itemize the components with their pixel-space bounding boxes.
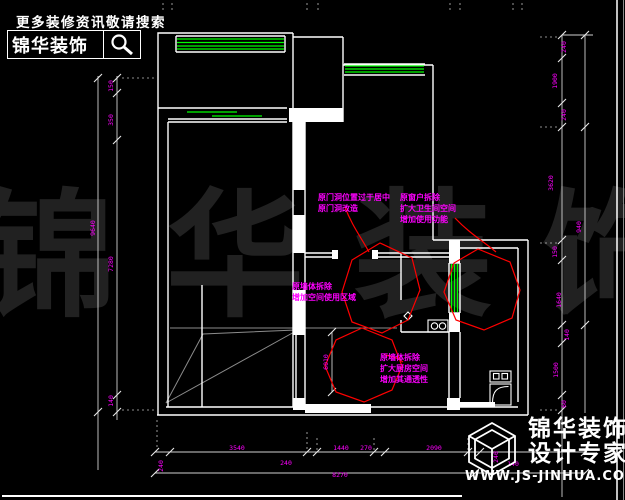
dim-value: 9640: [89, 220, 97, 236]
search-icon: [103, 31, 140, 58]
dim-value: 240: [157, 460, 165, 472]
dim-value: 150: [107, 80, 115, 92]
brand-search-box: 锦华装饰: [7, 30, 141, 59]
dim-value: 1900: [551, 73, 559, 89]
dim-value: 270: [360, 444, 372, 452]
footer-brand-line1: 锦华装饰: [528, 418, 625, 441]
dim-value: 240: [280, 459, 292, 467]
dim-value: 2090: [426, 444, 442, 452]
leader-window: [455, 218, 496, 252]
footer-brand-line2: 设计专家: [528, 443, 625, 466]
dim-value: 7280: [107, 256, 115, 272]
dim-value: 240: [560, 109, 568, 121]
annotation-door: 原门洞位置过于居中 原门洞改造: [318, 192, 390, 214]
annotation-line: 原门洞改造: [318, 203, 390, 214]
annotation-wall: 原墙体拆除 增加空间使用区域: [292, 281, 356, 303]
annotation-line: 增加空间使用区域: [292, 292, 356, 303]
footer-logo: 锦华装饰 设计专家 WWW.JS-JINHUA.COM: [462, 415, 625, 495]
dim-value: 940: [575, 221, 583, 233]
brand-name: 锦华装饰: [8, 32, 103, 58]
dim-value: 350: [107, 114, 115, 126]
dim-value-total: 8270: [332, 471, 348, 479]
extension-lines: [122, 3, 560, 450]
dim-value: 1500: [552, 362, 560, 378]
annotation-line: 原门洞位置过于居中: [318, 192, 390, 203]
walls: [157, 33, 528, 415]
dim-value: 140: [563, 329, 571, 341]
annotation-line: 扩大厨房空间: [380, 363, 428, 374]
cad-floorplan-screenshot: 锦华装饰: [0, 0, 625, 500]
annotation-window: 原窗户拆除 扩大卫生间空间 增加使用功能: [400, 192, 456, 225]
annotation-kitchen: 原墙体拆除 扩大厨房空间 增加其通透性: [380, 352, 428, 385]
dim-value: 3540: [229, 444, 245, 452]
annotation-line: 原窗户拆除: [400, 192, 456, 203]
dim-value: 140: [107, 395, 115, 407]
annotation-line: 原墙体拆除: [292, 281, 356, 292]
dimension-values: 150 350 9640 7280 140 240 1900 240 3620 …: [89, 41, 583, 479]
header-tagline: 更多装修资讯敬请搜索: [16, 11, 166, 31]
stairs-lines: [166, 328, 397, 403]
dim-value: 150: [551, 246, 559, 258]
annotation-line: 增加使用功能: [400, 214, 456, 225]
dim-value: 1640: [555, 292, 563, 308]
annotation-line: 原墙体拆除: [380, 352, 428, 363]
annotation-line: 增加其通透性: [380, 374, 428, 385]
dim-value: 3620: [547, 175, 555, 191]
dim-value: 240: [560, 41, 568, 53]
dim-value: 60: [560, 400, 568, 408]
annotation-line: 扩大卫生间空间: [400, 203, 456, 214]
footer-website: WWW.JS-JINHUA.COM: [465, 469, 625, 484]
dim-value: 1440: [333, 444, 349, 452]
dim-value: 6010: [322, 354, 330, 370]
